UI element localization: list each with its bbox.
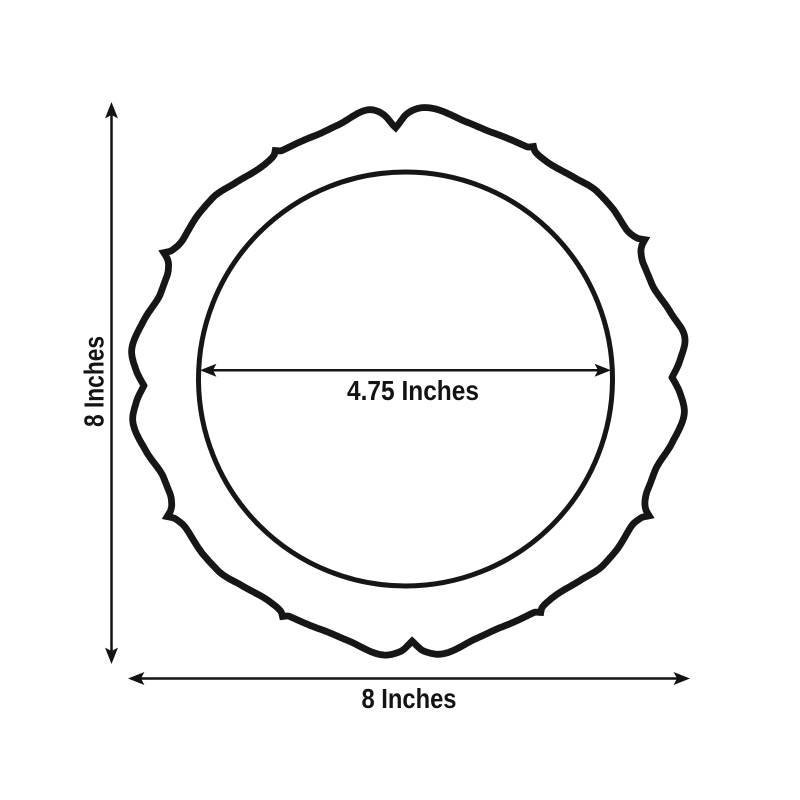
svg-text:4.75 Inches: 4.75 Inches [347, 375, 479, 406]
svg-text:8 Inches: 8 Inches [362, 683, 457, 714]
svg-text:8 Inches: 8 Inches [79, 336, 110, 427]
